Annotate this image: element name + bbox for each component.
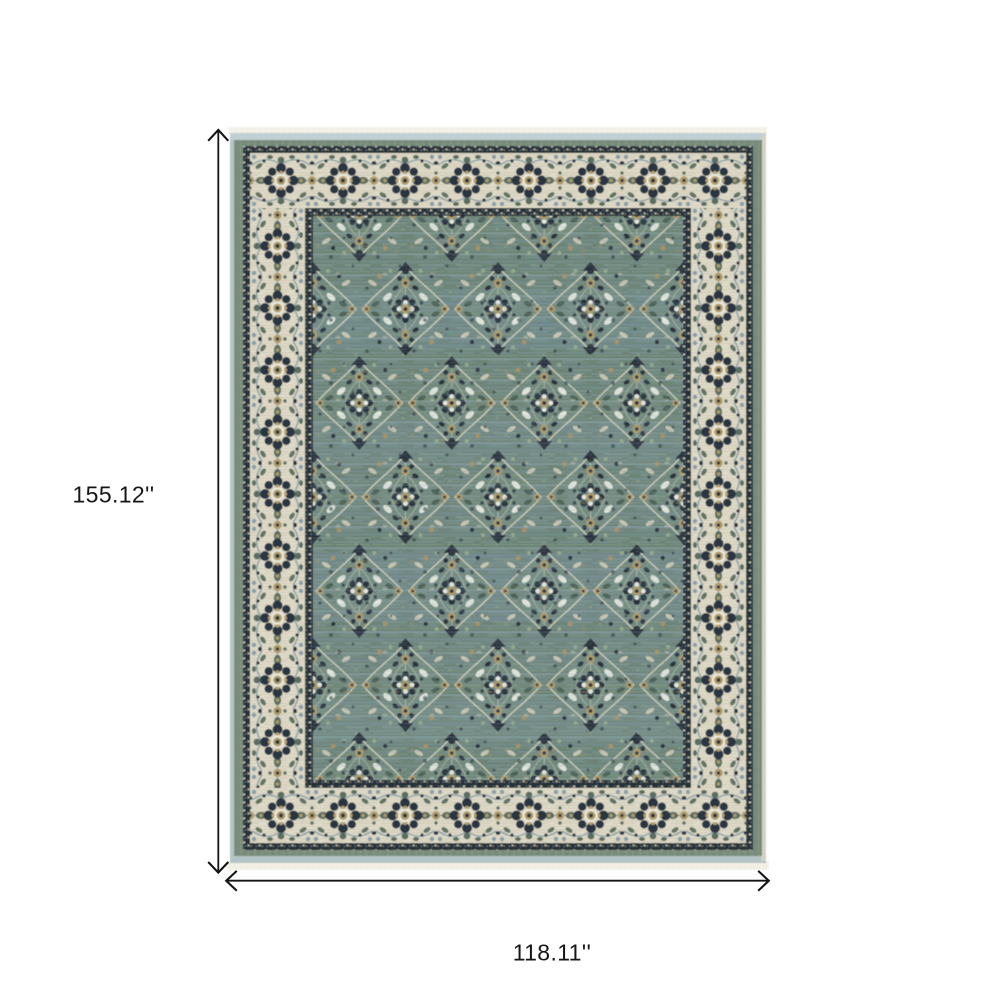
svg-text:118.11'': 118.11'' [513,940,592,966]
svg-text:155.12'': 155.12'' [73,482,155,508]
